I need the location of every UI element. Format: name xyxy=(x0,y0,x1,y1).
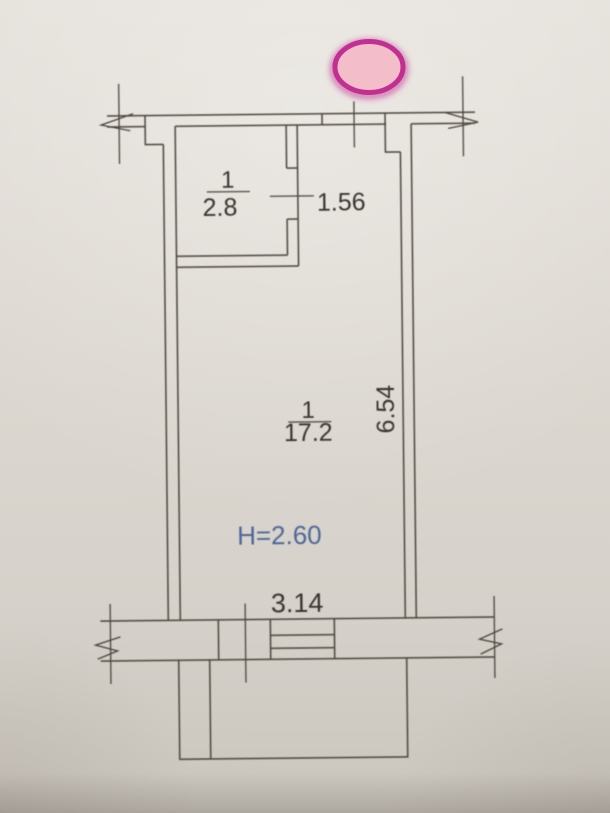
top-wall-outer-line xyxy=(107,112,475,116)
left-wall xyxy=(163,126,180,620)
floor-plan-drawing: 1 2.8 1.56 1 17.2 6.54 H=2.60 3.14 xyxy=(0,0,610,813)
floor-plan-photo: 1 2.8 1.56 1 17.2 6.54 H=2.60 3.14 xyxy=(0,0,610,813)
left-pier xyxy=(145,115,163,144)
bottom-window xyxy=(270,619,334,660)
extension-line-top-right xyxy=(463,76,464,156)
extension-line-width-dim xyxy=(245,604,246,683)
bottom-wall xyxy=(100,617,494,661)
right-wall xyxy=(400,124,416,618)
highlight-marker xyxy=(333,42,405,97)
highlight-marker-ellipse xyxy=(335,42,403,93)
ceiling-height-label: H=2.60 xyxy=(237,520,322,551)
storage-room-number: 1 xyxy=(221,167,235,194)
right-pier xyxy=(385,113,400,152)
break-mark-bottom-left xyxy=(95,637,120,659)
room-length-dimension: 6.54 xyxy=(372,385,401,434)
living-room-area: 17.2 xyxy=(284,419,333,448)
extension-line-bottom-left xyxy=(110,604,111,684)
extension-line-bottom-right xyxy=(494,596,495,678)
room-width-dimension: 3.14 xyxy=(271,588,324,619)
storage-bottom-wall xyxy=(176,255,298,267)
balcony-outline xyxy=(179,658,408,759)
storage-room-area: 2.8 xyxy=(202,194,237,222)
top-wall-inner-line xyxy=(107,123,475,127)
extension-line-top-left xyxy=(119,84,120,164)
break-mark-bottom-right xyxy=(479,629,502,654)
break-mark-top-right xyxy=(445,112,478,128)
opening-width-dimension: 1.56 xyxy=(317,188,366,217)
